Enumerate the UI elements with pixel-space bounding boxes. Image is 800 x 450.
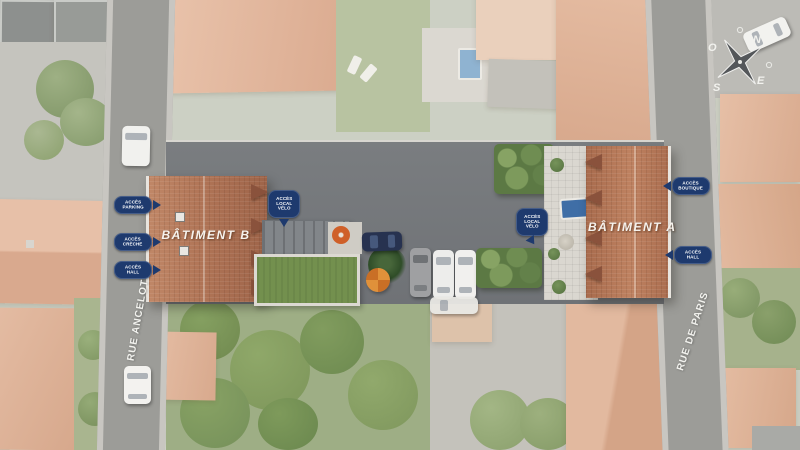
neighbor-roof xyxy=(716,184,800,268)
arrow-down-icon xyxy=(279,219,289,227)
compass-rose-icon: O N S E xyxy=(700,18,788,98)
access-parking-label: ACCÈS PARKING xyxy=(114,196,152,214)
access-boutique-text: ACCÈS BOUTIQUE xyxy=(679,181,704,191)
neighbor-roof xyxy=(0,199,105,305)
roof-dormer xyxy=(251,184,268,200)
tree-canopy xyxy=(348,360,418,430)
access-creche-label: ACCÈS CRÈCHE xyxy=(114,233,152,251)
tree-canopy xyxy=(258,398,318,450)
orange-umbrella xyxy=(366,268,390,292)
arrow-left-icon xyxy=(663,181,671,191)
access-velo-a-label: ACCÈS LOCAL VÉLO xyxy=(516,208,548,236)
site-plan-canvas: BÂTIMENT B xyxy=(0,0,800,450)
arrow-right-icon xyxy=(153,237,161,247)
batiment-a-label: BÂTIMENT A xyxy=(588,220,666,234)
terrace-furniture xyxy=(558,234,574,250)
compass-north-letter: N xyxy=(753,34,762,46)
tree-canopy xyxy=(24,120,64,160)
access-creche-text: ACCÈS CRÈCHE xyxy=(123,237,143,247)
roof-dormer xyxy=(585,266,602,282)
orange-umbrella xyxy=(332,226,350,244)
roof-window xyxy=(175,212,185,222)
white-car xyxy=(124,366,151,404)
neighbor-roof xyxy=(0,308,83,450)
arrow-right-icon xyxy=(153,200,161,210)
neighbor-shed xyxy=(752,426,800,450)
roof-window xyxy=(179,246,189,256)
access-boutique-label: ACCÈS BOUTIQUE xyxy=(672,177,710,195)
terrace-plant xyxy=(548,248,560,260)
white-van xyxy=(122,126,151,166)
access-velo-b-label: ACCÈS LOCAL VÉLO xyxy=(268,190,300,218)
white-car xyxy=(430,297,478,314)
tree-canopy xyxy=(752,300,796,344)
tree-canopy xyxy=(300,310,364,374)
access-hall-a-text: ACCÈS HALL xyxy=(684,250,703,260)
compass-west-letter: O xyxy=(708,42,717,54)
neighbor-roof xyxy=(476,0,568,60)
access-hall-b-text: ACCÈS HALL xyxy=(124,265,143,275)
chimney xyxy=(26,240,34,248)
neighbor-roof-gray xyxy=(487,59,561,109)
dark-blue-car xyxy=(362,231,403,251)
access-velo-b-text: ACCÈS LOCAL VÉLO xyxy=(276,197,292,212)
batiment-b-label: BÂTIMENT B xyxy=(150,228,262,242)
roof-dormer xyxy=(585,190,602,206)
arrow-right-icon xyxy=(153,265,161,275)
parked-car-white xyxy=(455,250,476,299)
arrow-left-icon xyxy=(665,250,673,260)
neighbor-roof xyxy=(720,94,800,182)
parked-car-white xyxy=(433,250,454,299)
access-hall-a-label: ACCÈS HALL xyxy=(674,246,712,264)
neighbor-roof xyxy=(566,296,668,450)
neighbor-roof xyxy=(163,0,341,94)
parked-car-gray xyxy=(410,248,431,297)
terrace-plant xyxy=(550,158,564,172)
compass-south-letter: S xyxy=(713,82,721,94)
access-parking-text: ACCÈS PARKING xyxy=(122,200,143,210)
access-hall-b-label: ACCÈS HALL xyxy=(114,261,152,279)
terrace-plant xyxy=(552,280,566,294)
compass-east-letter: E xyxy=(757,75,765,87)
hedge-planting xyxy=(476,248,542,288)
green-roof xyxy=(254,254,360,306)
roof-dormer xyxy=(585,154,602,170)
access-velo-a-text: ACCÈS LOCAL VÉLO xyxy=(524,215,540,230)
